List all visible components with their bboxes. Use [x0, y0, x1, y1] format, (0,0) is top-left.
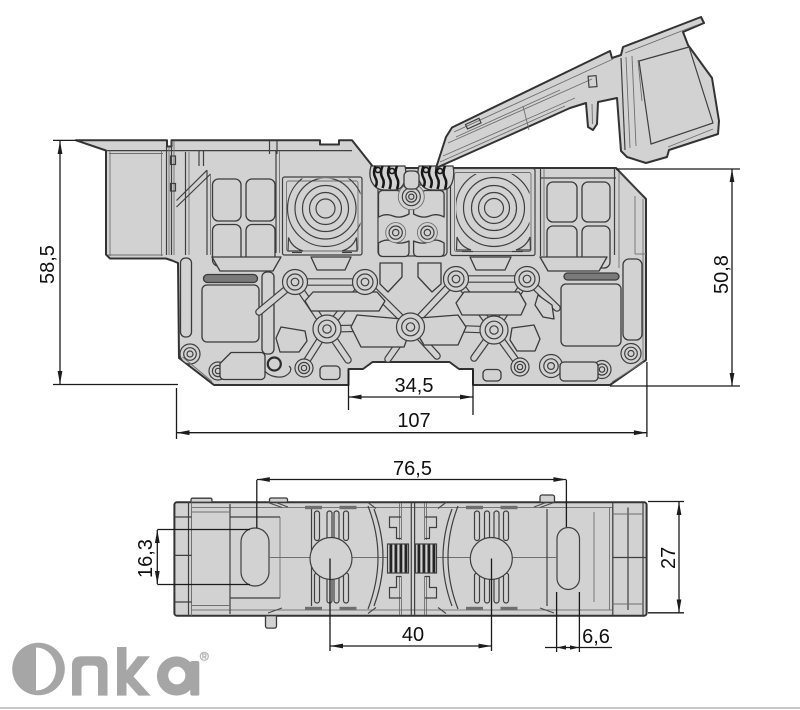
- svg-text:27: 27: [658, 547, 680, 569]
- svg-text:16,3: 16,3: [135, 539, 157, 578]
- svg-text:76,5: 76,5: [393, 458, 432, 480]
- svg-text:50,8: 50,8: [711, 255, 733, 294]
- svg-text:58,5: 58,5: [37, 245, 59, 284]
- svg-text:107: 107: [397, 410, 430, 432]
- svg-text:40: 40: [402, 624, 424, 646]
- svg-text:34,5: 34,5: [395, 375, 434, 397]
- svg-text:6,6: 6,6: [582, 626, 610, 648]
